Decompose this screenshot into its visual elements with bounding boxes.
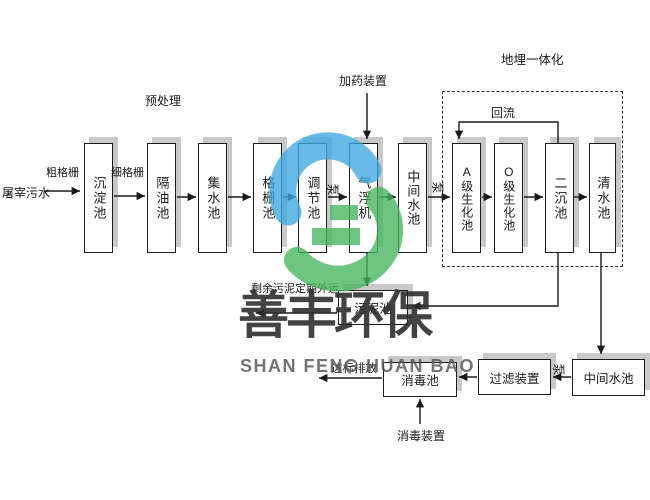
tank-sludge: 污泥池 [338, 290, 408, 325]
tank-o-stage-biochemical: O级生化池 [494, 143, 523, 253]
discharge-label: 达标排放 [331, 360, 377, 376]
sludge-disposal-note: 剩余污泥定期外运 [251, 280, 339, 296]
tank-regulating: 调节池 [298, 143, 327, 253]
tank-label: 集水池 [206, 176, 220, 221]
tank-label: 隔油池 [155, 176, 169, 221]
tank-label: O级生化池 [502, 165, 515, 232]
tank-label: 调节池 [306, 176, 320, 221]
coarse-screen-label: 粗格栅 [46, 164, 79, 180]
tank-label: 中间水池 [583, 368, 633, 387]
tank-intermediate-1: 中间水池 [398, 143, 427, 253]
buried-integration-label: 地埋一体化 [501, 49, 564, 68]
pump-label-3: 泵 [551, 363, 568, 375]
wastewater-process-flow-diagram: 屠宰污水 粗格栅 细格栅 预处理 加药装置 地埋一体化 回流 剩余污泥定期外运 … [0, 0, 650, 500]
tank-sedimentation: 沉淀池 [84, 143, 113, 253]
tank-a-stage-biochemical: A级生化池 [452, 143, 481, 253]
tank-oil-separation: 隔油池 [147, 143, 176, 253]
tank-label: 污泥池 [354, 298, 392, 317]
tank-label: A级生化池 [460, 165, 473, 232]
fine-screen-label: 细格栅 [111, 164, 144, 180]
tank-secondary-sedimentation: 二沉池 [545, 143, 574, 253]
pump-label-1: 泵 [325, 183, 342, 195]
tank-label: 消毒池 [401, 370, 439, 389]
tank-label: 清水池 [596, 176, 610, 221]
pretreatment-label: 预处理 [145, 92, 181, 109]
tank-water-collection: 集水池 [198, 143, 227, 253]
tank-label: 气浮机 [357, 176, 371, 221]
tank-screen: 格栅池 [253, 143, 282, 253]
tank-intermediate-2: 中间水池 [572, 359, 645, 396]
tank-label: 沉淀池 [92, 176, 106, 221]
dosing-device-label: 加药装置 [339, 72, 387, 89]
pump-label-2: 泵 [430, 181, 447, 193]
tank-label: 二沉池 [553, 176, 567, 221]
source-label: 屠宰污水 [2, 184, 50, 201]
filter-device-box: 过滤装置 [478, 359, 551, 395]
tank-label: 过滤装置 [489, 368, 539, 387]
air-flotation-machine: 气浮机 [349, 143, 378, 253]
tank-label: 中间水池 [406, 170, 420, 226]
disinfection-device-label: 消毒装置 [397, 427, 445, 444]
tank-disinfection: 消毒池 [383, 362, 457, 397]
tank-label: 格栅池 [261, 176, 275, 221]
reflux-label: 回流 [491, 104, 515, 121]
tank-clear-water: 清水池 [589, 143, 616, 253]
